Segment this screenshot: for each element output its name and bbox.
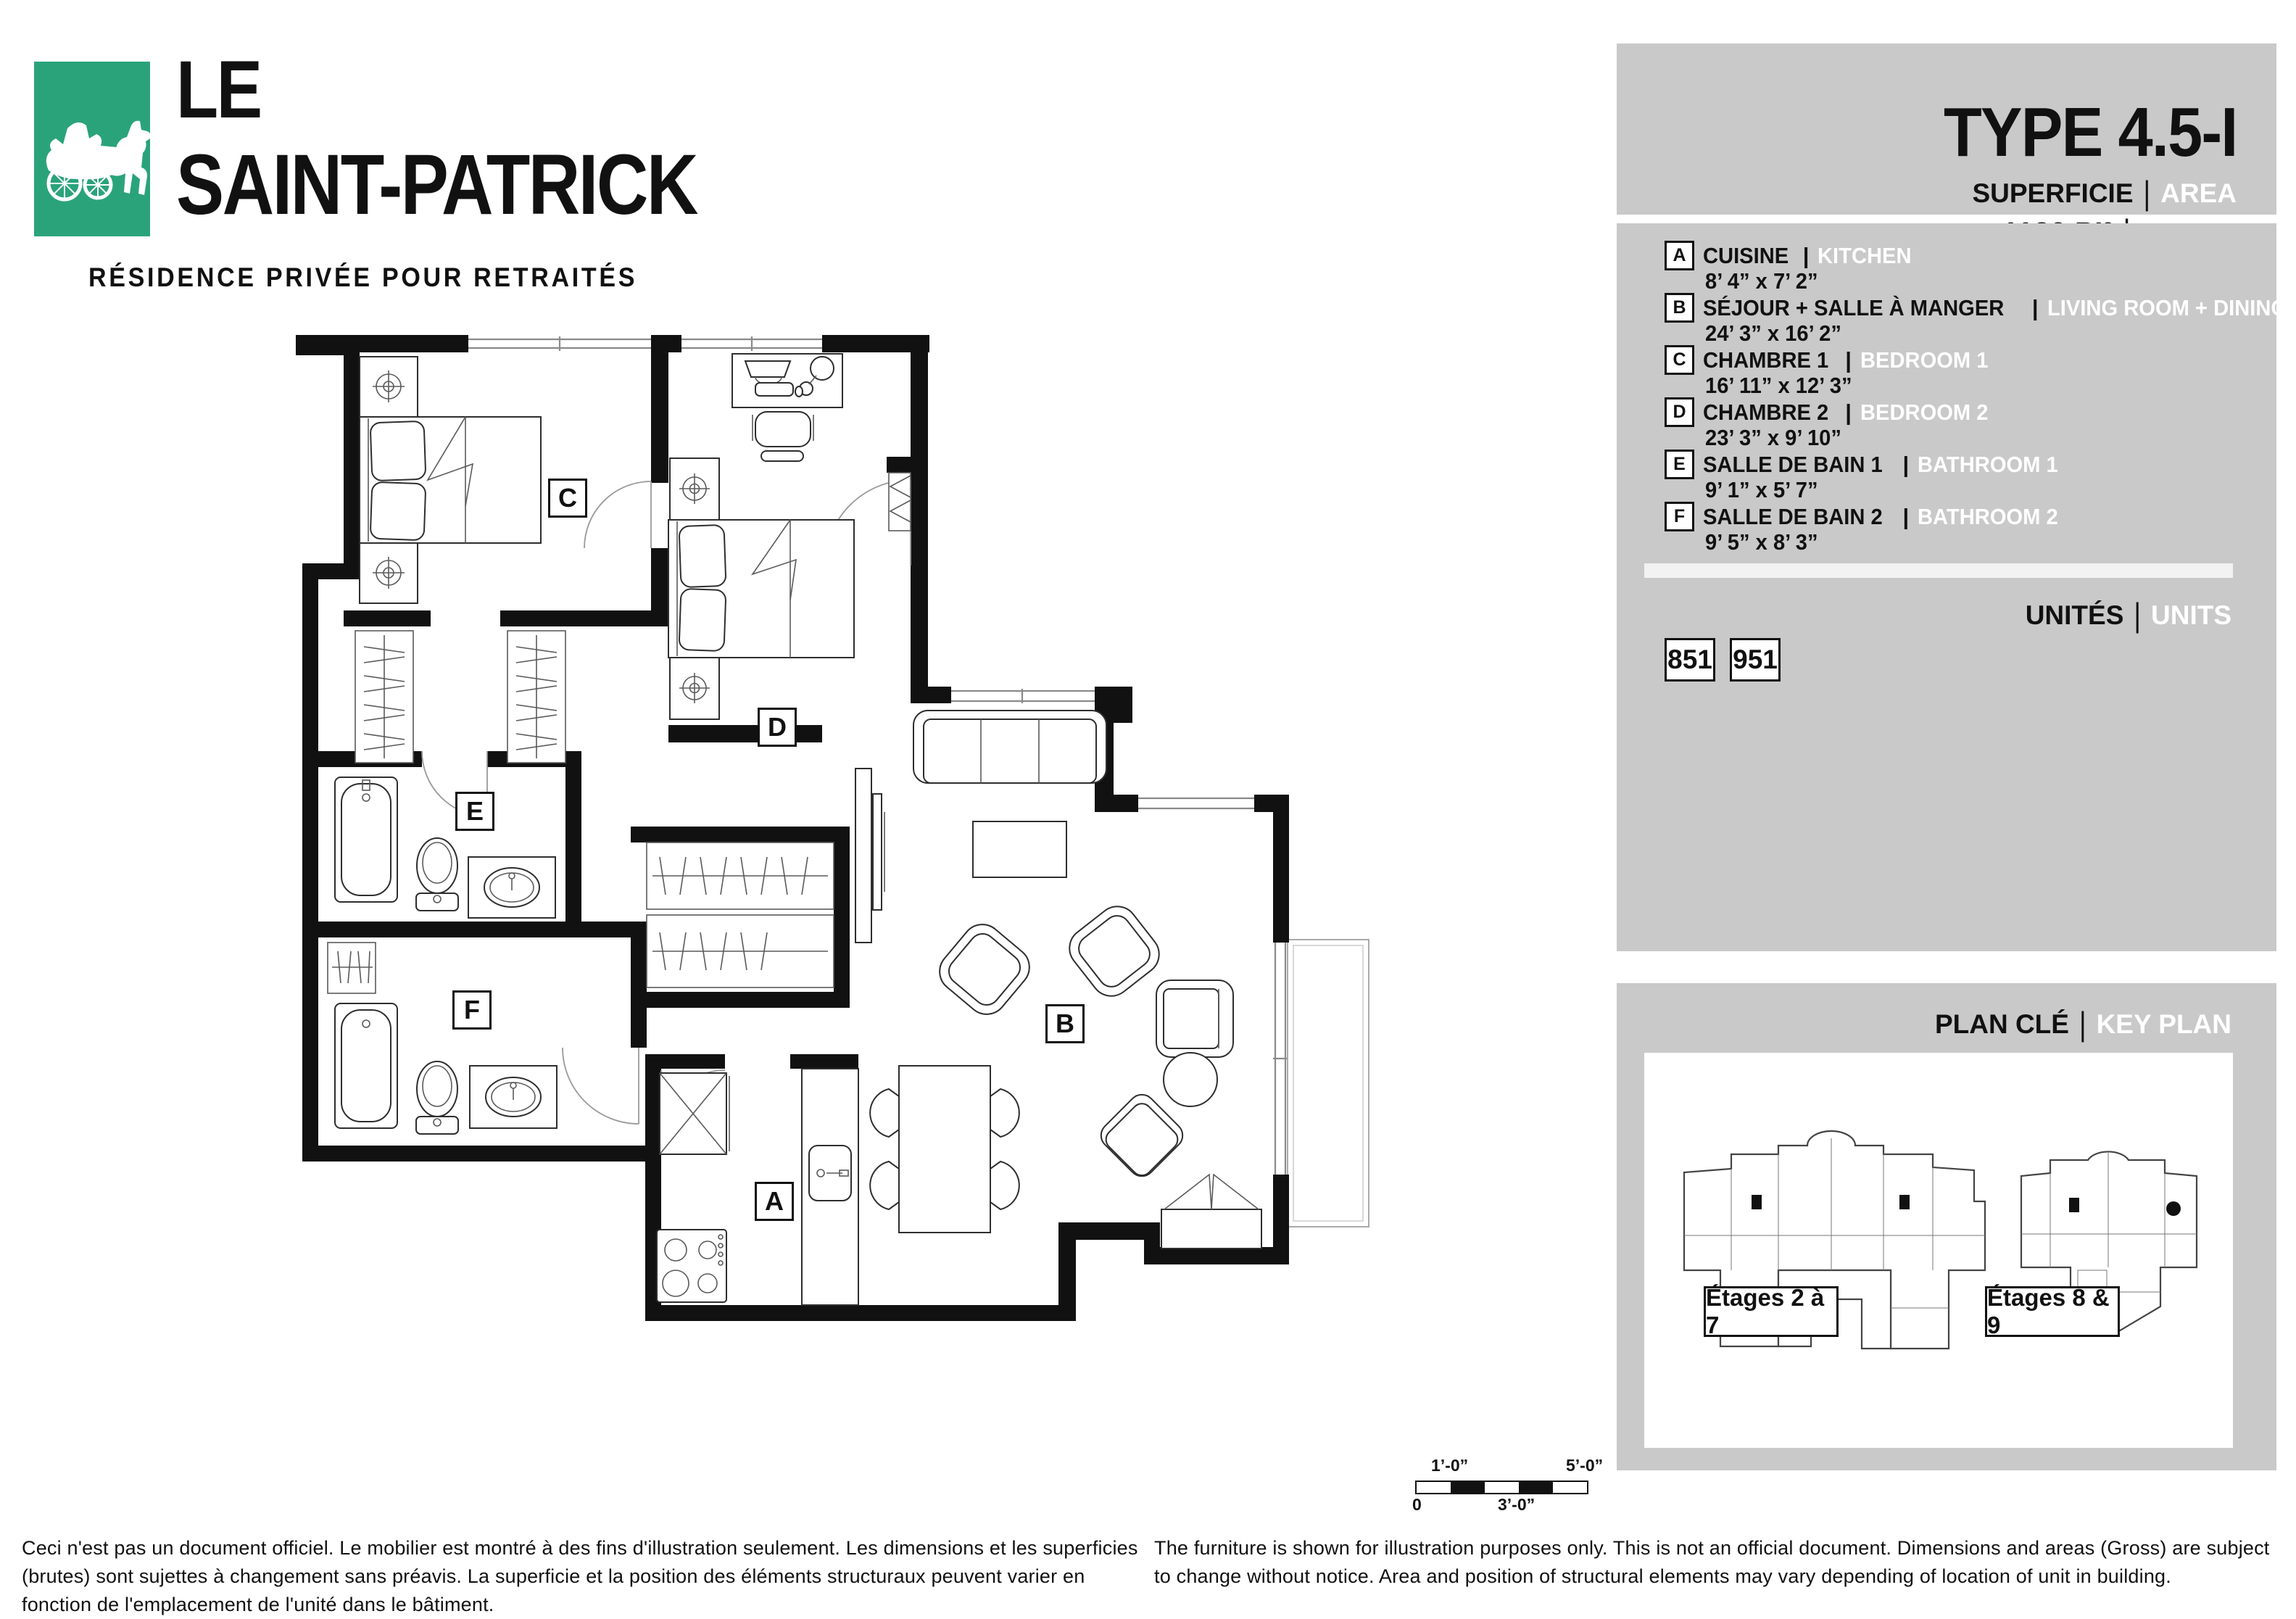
window-living-top [951, 689, 1095, 703]
nightstand-bedroom2-bottom [670, 658, 719, 719]
unit-number-851: 851 [1665, 638, 1715, 682]
closet-bedroom1-right [507, 631, 565, 763]
entry-closet-bifold [889, 473, 911, 531]
window-bedroom1 [468, 336, 651, 351]
logo-subtitle: RÉSIDENCE PRIVÉE POUR RETRAITÉS [88, 262, 637, 293]
scale-bar [1415, 1481, 1588, 1494]
legend-en-e: BATHROOM 1 [1918, 452, 2058, 478]
sofa [913, 711, 1106, 783]
floor-plan [283, 319, 1385, 1327]
legend-dims-b: 24’ 3” x 16’ 2” [1705, 320, 1841, 347]
logo-carriage-icon [34, 62, 150, 236]
closet-bedroom1-left [355, 631, 413, 763]
disclaimer-french: Ceci n'est pas un document officiel. Le … [22, 1534, 1138, 1619]
armchair-1 [932, 916, 1038, 1023]
horse-carriage-glyph [46, 121, 150, 199]
closet-hall-lower [647, 915, 834, 987]
ottoman-chair [1095, 1089, 1188, 1181]
vanity-sink-2 [470, 1066, 557, 1128]
desk-bedroom2 [732, 354, 842, 407]
bathtub-1 [335, 777, 397, 902]
nightstand-bedroom1-bottom [360, 543, 418, 603]
unit-location-dot [2166, 1201, 2181, 1216]
plan-cle-label: PLAN CLÉ [1935, 1009, 2069, 1040]
coffee-table [973, 821, 1066, 877]
room-label-bedroom1: C [548, 479, 587, 518]
vanity-sink-1 [468, 857, 555, 918]
legend-letter-c: C [1665, 345, 1694, 375]
unit-number-951: 951 [1730, 638, 1781, 682]
refrigerator [660, 1073, 729, 1154]
legend-fr-a: CUISINE [1703, 243, 1789, 269]
scale-label-1ft: 1’-0” [1431, 1456, 1468, 1475]
legend-fr-d: CHAMBRE 2 [1703, 399, 1828, 426]
legend-letter-f: F [1665, 502, 1694, 531]
bed-bedroom2 [668, 520, 854, 658]
round-side-table [1164, 1053, 1217, 1106]
room-label-kitchen: A [755, 1182, 794, 1221]
floor-label-8and9: Étages 8 & 9 [1985, 1286, 2120, 1337]
linen-closet [328, 943, 376, 993]
legend-letter-d: D [1665, 397, 1694, 427]
window-bedroom2 [681, 336, 822, 351]
unites-label: UNITÉS [2026, 600, 2124, 631]
logo-line1: LE [176, 49, 261, 131]
legend-dims-f: 9’ 5” x 8’ 3” [1705, 529, 1818, 555]
scale-label-0: 0 [1412, 1495, 1422, 1515]
armchair-2 [1061, 898, 1167, 1004]
area-label: AREA [2160, 178, 2237, 209]
balcony [1288, 940, 1369, 1227]
scale-label-3ft: 3’-0” [1498, 1495, 1535, 1515]
legend-en-a: KITCHEN [1818, 243, 1912, 269]
keyplan-panel: PLAN CLÉ | KEY PLAN [1617, 983, 2276, 1470]
scale-label-5ft: 5’-0” [1566, 1456, 1603, 1475]
legend-letter-a: A [1665, 241, 1694, 270]
legend-fr-e: SALLE DE BAIN 1 [1703, 452, 1883, 478]
floor-label-2to7: Étages 2 à 7 [1704, 1286, 1839, 1337]
kitchen-island [802, 1069, 858, 1305]
legend-dims-d: 23’ 3” x 9’ 10” [1705, 425, 1841, 451]
header-panel: PHASE 2 TYPE 4.5-I SUPERFICIE | AREA 112… [1617, 44, 2276, 215]
legend-fr-b: SÉJOUR + SALLE À MANGER [1703, 295, 2004, 321]
armchair-3 [1156, 980, 1233, 1057]
disclaimer-english: The furniture is shown for illustration … [1154, 1534, 2282, 1591]
desk-chair-bedroom2 [753, 412, 813, 461]
legend-dims-e: 9’ 1” x 5’ 7” [1705, 477, 1818, 503]
legend-en-d: BEDROOM 2 [1860, 399, 1988, 426]
superficie-label: SUPERFICIE [1972, 178, 2133, 209]
logo-line2: SAINT-PATRICK [176, 142, 697, 228]
closet-hall-upper [647, 842, 834, 909]
nightstand-bedroom2-top [670, 458, 719, 520]
legend-dims-a: 8’ 4” x 7’ 2” [1705, 268, 1818, 294]
legend-en-f: BATHROOM 2 [1918, 504, 2058, 530]
patio-door-window [1273, 943, 1288, 1175]
legend-letter-b: B [1665, 293, 1694, 323]
legend-dims-c: 16’ 11” x 12’ 3” [1705, 373, 1852, 399]
room-label-living: B [1045, 1004, 1085, 1043]
unit-type-title: TYPE 4.5-I [1943, 93, 2237, 173]
room-label-bath1: E [455, 792, 494, 831]
toilet-2 [416, 1061, 458, 1134]
legend-en-b: LIVING ROOM + DINING [2047, 295, 2287, 321]
legend-letter-e: E [1665, 450, 1694, 479]
tv-unit [855, 769, 884, 943]
legend-panel: A CUISINE | KITCHEN 8’ 4” x 7’ 2” B SÉJO… [1617, 223, 2276, 951]
window-living-right-top [1138, 796, 1254, 811]
room-label-bedroom2: D [758, 708, 797, 747]
units-label: UNITS [2151, 600, 2231, 631]
bathtub-2 [335, 1003, 397, 1128]
separator: | [2144, 175, 2151, 213]
nightstand-bedroom1-top [360, 357, 418, 417]
key-plan-label: KEY PLAN [2097, 1009, 2231, 1040]
legend-en-c: BEDROOM 1 [1860, 347, 1988, 373]
toilet-1 [416, 838, 458, 911]
room-label-bath2: F [452, 990, 492, 1030]
stove [657, 1230, 726, 1302]
legend-fr-f: SALLE DE BAIN 2 [1703, 504, 1883, 530]
legend-fr-c: CHAMBRE 1 [1703, 347, 1828, 373]
bench-seat [1161, 1175, 1261, 1249]
dining-table [870, 1066, 1019, 1233]
panel-divider-bar [1644, 563, 2233, 578]
keyplan-drawing [1644, 1053, 2233, 1448]
bed-bedroom1 [360, 417, 541, 543]
